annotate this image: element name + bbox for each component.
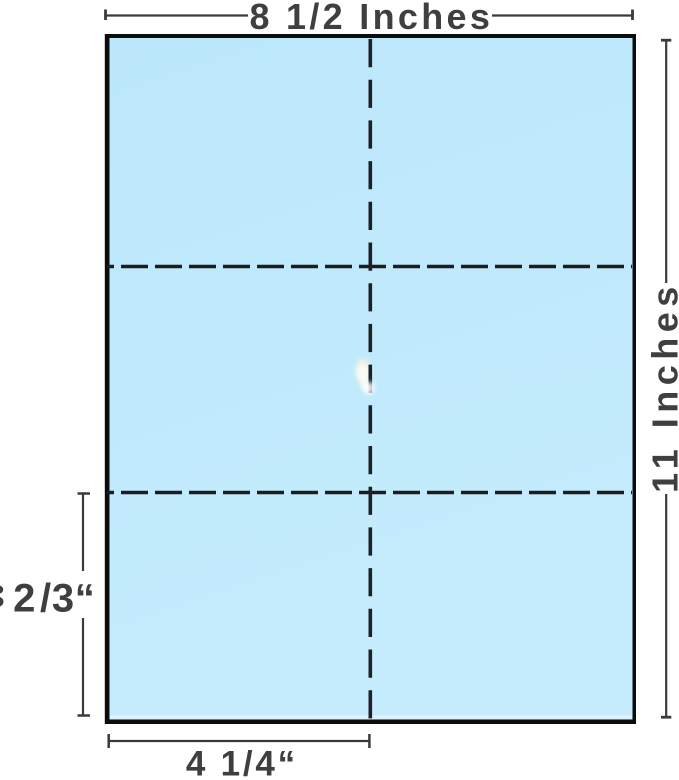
svg-text:8 1/2 Inches: 8 1/2 Inches [249, 0, 493, 37]
svg-text:11 Inches: 11 Inches [645, 281, 679, 493]
svg-text:4 1/4“: 4 1/4“ [186, 745, 298, 780]
svg-text:2/3“: 2/3“ [13, 577, 95, 621]
